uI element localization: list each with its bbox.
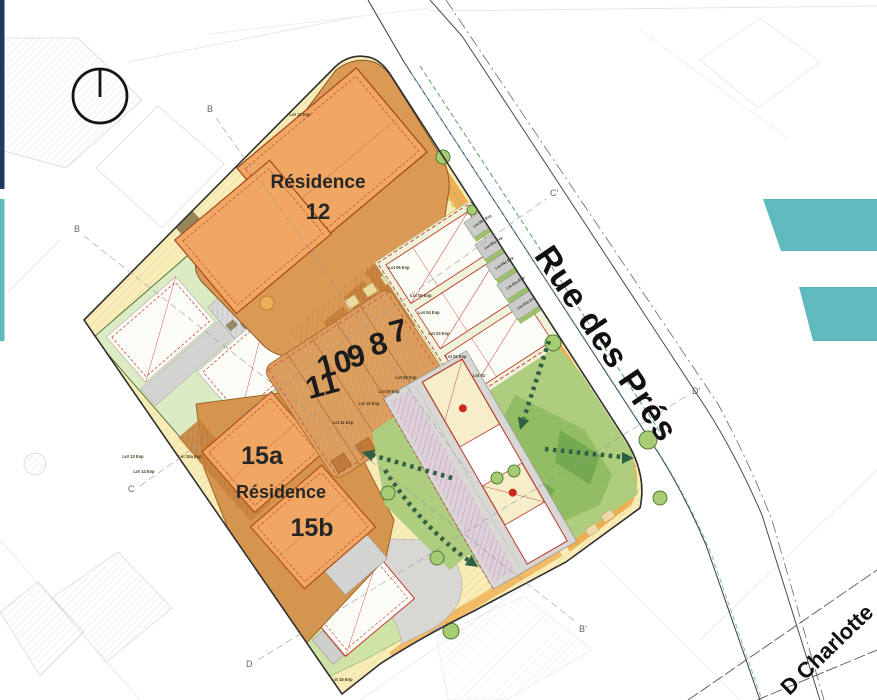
lot-label-12: Lot 12 Evp [289,112,311,117]
lot-label-15: Lot 15 Evp [331,677,353,682]
marker-b-top: B [207,104,213,114]
residence-15a-label: 15a [241,442,284,470]
lot-label-03: Lot 03 Evp [428,331,450,336]
residence-12-number: 12 [306,199,330,224]
lot-label-05: Lot 05 Evp [410,293,432,298]
lot-label-13: Lot 13 Evp [122,454,144,459]
street-name-d-charlotte: D Charlotte [775,599,877,699]
residence-15-name: Résidence [236,482,326,502]
marker-b-prime: B' [579,624,587,634]
lot-label-04: Lot 04 Evp [418,310,440,315]
marker-b-left: B [74,224,80,234]
teal-edge-bar [0,199,5,341]
marker-d: D [246,659,253,669]
teal-accent-top [763,199,877,251]
marker-c-prime: C' [550,188,558,198]
lot-label-09: Lot 09 Evp [378,389,400,394]
site-plan-page: B B B' C C' D D' Résidence 12 15a Réside… [0,0,877,700]
development-site [84,56,667,694]
teal-accent-bottom [799,287,877,341]
site-plan-canvas: B B B' C C' D D' Résidence 12 15a Réside… [0,0,877,700]
lot-label-15a: Lot 15a Evp [178,454,202,459]
navy-edge-bar [0,0,5,189]
lot-label-14: Lot 14 Evp [133,469,155,474]
lot-label-01: Lot 01 [473,373,486,378]
lot-label-02: Lot 02 Evp [445,354,467,359]
marker-c: C [128,484,135,494]
residence-15b-label: 15b [290,514,333,542]
lot-label-06: Lot 06 Evp [388,265,410,270]
residence-12-name: Résidence [270,172,365,193]
marker-d-prime: D' [692,386,700,396]
lot-label-08: Lot 08 Evp [395,375,417,380]
lot-label-11: Lot 11 Evp [333,420,354,425]
lot-label-10: Lot 10 Evp [358,401,380,406]
